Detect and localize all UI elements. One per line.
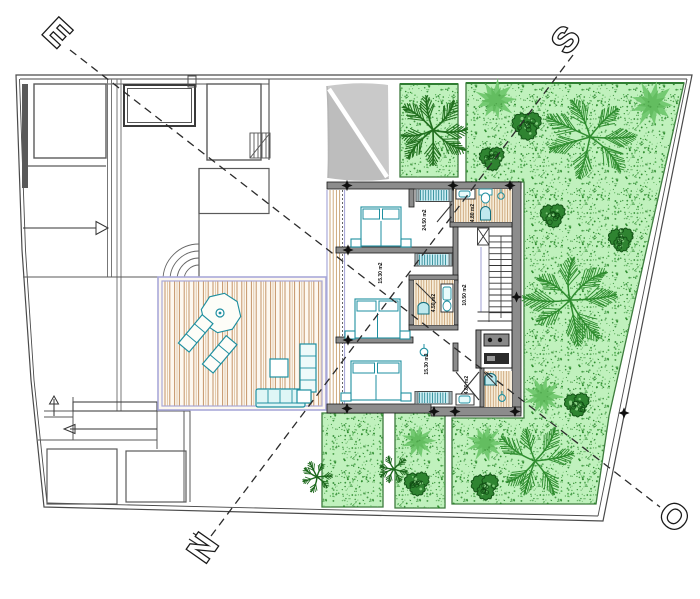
svg-text:E: E: [36, 11, 79, 54]
svg-text:N: N: [180, 527, 225, 569]
svg-text:4.50 m2: 4.50 m2: [431, 294, 437, 313]
svg-text:15.30 m2: 15.30 m2: [378, 262, 384, 283]
svg-text:O: O: [652, 494, 697, 540]
svg-text:10.50 m2: 10.50 m2: [462, 284, 468, 305]
svg-text:24.50 m2: 24.50 m2: [422, 209, 428, 230]
svg-text:4.80 m2: 4.80 m2: [470, 204, 476, 223]
svg-text:S: S: [544, 19, 588, 61]
svg-text:15.30 m2: 15.30 m2: [424, 353, 430, 374]
svg-text:4.80 m2: 4.80 m2: [464, 376, 470, 395]
